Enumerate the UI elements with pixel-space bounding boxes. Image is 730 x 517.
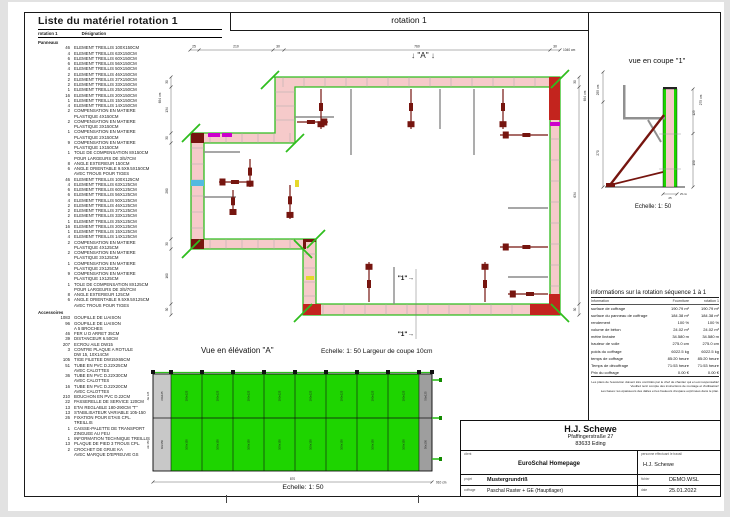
info-table-row: surface du panneau de coffrage184.38 m²1… xyxy=(591,312,719,319)
svg-text:AE 125: AE 125 xyxy=(146,391,150,400)
svg-text:100x150: 100x150 xyxy=(371,439,375,450)
svg-text:25: 25 xyxy=(668,196,672,200)
svg-text:255 cm: 255 cm xyxy=(596,84,600,95)
client-value: EuroSchal Homepage xyxy=(461,461,637,467)
elevation-title: Vue en élévation "A" xyxy=(201,346,274,355)
section-scale: Echelle: 1: 50 xyxy=(593,204,713,210)
svg-text:"1"→: "1"→ xyxy=(398,275,414,282)
svg-text:1040 cm: 1040 cm xyxy=(563,48,576,52)
svg-text:634: 634 xyxy=(573,192,577,198)
svg-text:160: 160 xyxy=(165,273,169,279)
svg-text:910 cm: 910 cm xyxy=(436,481,447,485)
elevation-drawing: 60x12560x150100x125100x150100x125100x150… xyxy=(143,358,473,486)
section-drawing: 275 cm125150255 cm2702525 cm xyxy=(593,68,728,204)
title-block-divider xyxy=(637,450,638,496)
svg-text:100x150: 100x150 xyxy=(216,439,220,450)
svg-text:"1"→: "1"→ xyxy=(398,331,414,338)
info-table-title: informations sur la rotation séquence 1 … xyxy=(591,289,719,298)
section-view: vue en coupe "1" 275 cm125150255 cm27025… xyxy=(593,54,728,222)
svg-text:870: 870 xyxy=(290,477,296,481)
info-table-row: hauteur de voile275.0 cm275.0 cm xyxy=(591,340,719,347)
formwork-label: coffrage xyxy=(464,488,475,492)
svg-text:50x125: 50x125 xyxy=(424,391,428,401)
svg-text:134: 134 xyxy=(165,107,169,113)
svg-text:100x125: 100x125 xyxy=(185,390,189,401)
svg-text:100x125: 100x125 xyxy=(371,390,375,401)
date-label: date xyxy=(641,488,647,492)
svg-text:275 cm: 275 cm xyxy=(699,94,703,105)
worker-label: personne effectuant le travail xyxy=(641,452,682,456)
elevation-scale: Echelle: 1: 50 xyxy=(233,484,373,491)
plan-svg: 2521030760301040 cm30134302803016030694 … xyxy=(148,30,593,352)
title-block-divider xyxy=(461,474,720,475)
svg-text:150: 150 xyxy=(692,160,696,166)
svg-text:100x125: 100x125 xyxy=(216,390,220,401)
svg-text:125: 125 xyxy=(692,110,696,116)
fold-mark xyxy=(418,495,419,503)
file-value: DEMO.WSL xyxy=(669,477,699,483)
svg-text:30: 30 xyxy=(573,80,577,84)
date-value: 25.01.2022 xyxy=(669,488,697,494)
svg-text:30: 30 xyxy=(165,80,169,84)
company-name: H.J. Schewe xyxy=(461,424,720,434)
svg-text:100x150: 100x150 xyxy=(309,439,313,450)
svg-text:100x150: 100x150 xyxy=(278,439,282,450)
file-label: fichier xyxy=(641,477,650,481)
info-table-row: mètre linéaire34.580 m34.580 m xyxy=(591,333,719,340)
info-table-row: surface de coffrage190.79 m²190.79 m² xyxy=(591,305,719,312)
company-address-line1: Pfaffingerstraße 27 xyxy=(461,434,720,440)
plan-wall-band xyxy=(191,77,560,315)
svg-text:280: 280 xyxy=(165,188,169,194)
drawing-sheet: Liste du matériel rotation 1 rotation 1D… xyxy=(8,2,724,511)
svg-text:100x125: 100x125 xyxy=(309,390,313,401)
section-title: vue en coupe "1" xyxy=(593,56,721,65)
section-svg: 275 cm125150255 cm2702525 cm xyxy=(593,68,728,204)
svg-text:60x125: 60x125 xyxy=(160,391,164,401)
worker-value: H.J. Schewe xyxy=(643,462,674,468)
svg-text:100x125: 100x125 xyxy=(402,390,406,401)
elevation-view: Vue en élévation "A" Echelle: 1: 50 Larg… xyxy=(143,346,478,498)
elevation-subtitle: Echelle: 1: 50 Largeur de coupe 10cm xyxy=(321,348,432,355)
title-block-divider xyxy=(461,485,720,486)
info-table-row: Temps de décoffrage71:53 heure71:53 heur… xyxy=(591,362,719,369)
plan-title: rotation 1 xyxy=(230,15,588,25)
info-table-header: InformationFourniturerotation 1 xyxy=(591,298,719,305)
svg-text:50x150: 50x150 xyxy=(424,439,428,449)
svg-text:100x125: 100x125 xyxy=(247,390,251,401)
svg-text:760: 760 xyxy=(414,45,420,49)
info-table-row: rendement100 %100 % xyxy=(591,319,719,326)
svg-text:100x150: 100x150 xyxy=(185,439,189,450)
plan-view: 2521030760301040 cm30134302803016030694 … xyxy=(148,30,593,352)
svg-text:694 cm: 694 cm xyxy=(583,90,587,101)
info-table-row: temps de coffrage85:20 heure85:20 heure xyxy=(591,355,719,362)
svg-text:30: 30 xyxy=(573,308,577,312)
svg-text:30: 30 xyxy=(165,136,169,140)
svg-text:AE 150: AE 150 xyxy=(146,440,150,449)
svg-text:100x150: 100x150 xyxy=(247,439,251,450)
client-label: client xyxy=(464,452,471,456)
svg-text:30: 30 xyxy=(276,45,280,49)
title-block: H.J. Schewe Pfaffingerstraße 27 83633 Ed… xyxy=(460,420,721,497)
company-address-line2: 83633 Eding xyxy=(461,441,720,447)
svg-text:270: 270 xyxy=(596,150,600,156)
svg-text:100x150: 100x150 xyxy=(340,439,344,450)
info-table-row: poids du coffrage6022.5 kg6022.5 kg xyxy=(591,348,719,355)
elevation-svg: 60x12560x150100x125100x150100x125100x150… xyxy=(143,358,473,486)
fold-mark xyxy=(226,495,227,503)
svg-text:25 cm: 25 cm xyxy=(680,192,687,196)
info-table-row: Prix du coffrage0.00 €0.00 € xyxy=(591,369,719,376)
svg-text:210: 210 xyxy=(233,45,239,49)
svg-text:30: 30 xyxy=(165,242,169,246)
svg-text:100x125: 100x125 xyxy=(340,390,344,401)
project-label: projet xyxy=(464,477,472,481)
svg-text:100x150: 100x150 xyxy=(402,439,406,450)
info-table: informations sur la rotation séquence 1 … xyxy=(591,289,719,393)
title-block-divider xyxy=(461,450,720,451)
info-table-row: volume de béton24.02 m³24.02 m³ xyxy=(591,326,719,333)
svg-text:30: 30 xyxy=(165,308,169,312)
svg-text:25: 25 xyxy=(192,45,196,49)
disclaimer-text: Les plans de l'exécution doivent être co… xyxy=(591,380,719,393)
formwork-value: Paschal Raster + GE (Hauptlager) xyxy=(487,488,563,494)
svg-text:60x150: 60x150 xyxy=(160,439,164,449)
svg-text:↓ "A" ↓: ↓ "A" ↓ xyxy=(411,51,435,60)
project-value: Mustergrundriß xyxy=(487,477,528,483)
svg-text:100x125: 100x125 xyxy=(278,390,282,401)
svg-text:694 cm: 694 cm xyxy=(158,92,162,103)
material-list-title: Liste du matériel rotation 1 xyxy=(38,15,222,30)
svg-text:30: 30 xyxy=(553,45,557,49)
